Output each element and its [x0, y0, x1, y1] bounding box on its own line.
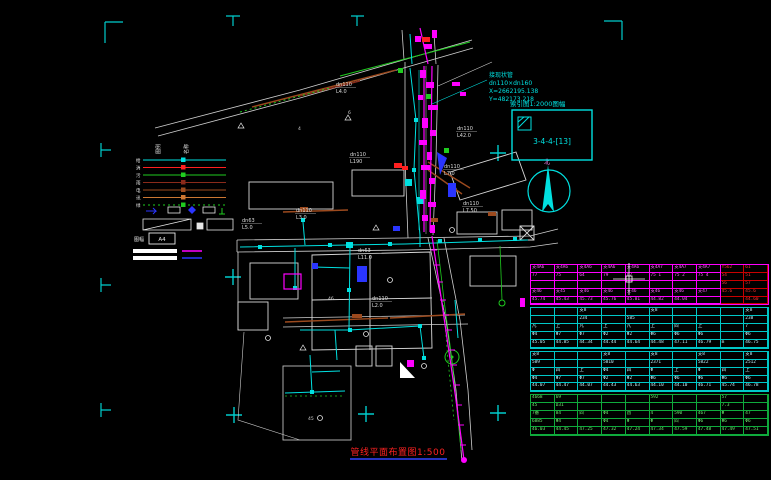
- green-line: [500, 246, 502, 300]
- table-cell: [555, 308, 579, 316]
- table-cell: 54: [721, 273, 745, 281]
- table-cell: 75 2: [673, 273, 697, 281]
- table-cell: Φ6: [697, 419, 721, 427]
- legend-symbol-row: [146, 206, 225, 214]
- table-cell: [578, 395, 602, 403]
- pipe-length-label: L42.0: [457, 133, 471, 139]
- table-cell: 支4A6: [578, 265, 602, 273]
- road-vertical-edge: [402, 30, 408, 238]
- table-cell: 84: [555, 411, 579, 419]
- table-cell: [626, 360, 650, 368]
- pipe-length-label: L11.0: [358, 255, 372, 261]
- legend-item-label: 污: [136, 172, 141, 179]
- table-cell: 支8: [602, 352, 626, 360]
- boundary-line: [238, 332, 300, 440]
- table-cell: 77: [531, 273, 555, 281]
- table-cell: [626, 281, 650, 289]
- north-arrow: 北: [528, 158, 570, 212]
- pipe-size-label: dn110: [336, 82, 352, 88]
- pipe-length-label: L4.0: [336, 89, 347, 95]
- legend-header-left: 图例: [155, 144, 162, 154]
- table-cell: Φ: [626, 419, 650, 427]
- pipe-length-label: L7.50: [463, 208, 477, 214]
- table-cell: 47.59: [673, 427, 697, 435]
- table-cell: 支4A7: [650, 265, 674, 273]
- map-number-label: 45: [308, 416, 314, 422]
- table-cell: 凡: [531, 324, 555, 332]
- hatch-box-icon: [143, 219, 191, 230]
- table-cell: Φ4: [531, 376, 555, 384]
- index-box: 索引图1:2000图幅 3-4-4-[13]: [510, 99, 592, 160]
- table-cell: 支46: [626, 289, 650, 297]
- table-cell: [721, 316, 745, 324]
- table-cell: 238: [744, 316, 768, 324]
- pipe-length-label: L2.0: [372, 303, 383, 309]
- table-cell: 上: [744, 368, 768, 376]
- table-cell: Φ6: [650, 332, 674, 340]
- table-cell: 45.76: [602, 297, 626, 305]
- table-cell: Φ7: [578, 332, 602, 340]
- table-cell: [578, 360, 602, 368]
- red-marker: [422, 37, 430, 42]
- frame-corner-top-left: [105, 22, 123, 43]
- magenta-line-vertical: [424, 66, 432, 232]
- table-cell: 47.49: [721, 427, 745, 435]
- utility-box: [488, 212, 496, 216]
- table-cell: 47: [744, 411, 768, 419]
- table-cell: [650, 316, 674, 324]
- table-cell: 45.43: [555, 297, 579, 305]
- table-cell: [673, 316, 697, 324]
- legend-line-symbol: [181, 158, 186, 163]
- table-cell: 支8: [697, 352, 721, 360]
- table-cell: 上: [602, 324, 626, 332]
- table-cell: 7番: [531, 411, 555, 419]
- legend-item-label: 电: [136, 187, 141, 194]
- table-cell: 支8: [578, 308, 602, 316]
- table-cell: Φ7: [578, 376, 602, 384]
- annotation-line-0: 接现状管: [489, 71, 513, 79]
- table-cell: 支46: [673, 289, 697, 297]
- table-cell: [697, 308, 721, 316]
- table-cell: Φ2: [602, 332, 626, 340]
- legend-header-right: 名称: [183, 144, 190, 154]
- table-cell: Φ2: [626, 332, 650, 340]
- elevation-table: 支4A6支4A6支4A6支4A6支4A6支4A7支4A7支4A7Y5626177…: [530, 264, 769, 436]
- green-symbol-icon: [219, 208, 225, 214]
- table-cell: Φ: [531, 368, 555, 376]
- table-cell: [602, 308, 626, 316]
- water-branch: [295, 222, 350, 330]
- table-cell: 585: [626, 316, 650, 324]
- table-cell: 44.10: [673, 383, 697, 391]
- table-cell: 上: [578, 368, 602, 376]
- map-number-label: 46: [328, 296, 334, 302]
- plain-box-icon: [207, 219, 233, 230]
- water-line: [410, 34, 412, 64]
- table-cell: Φ4: [602, 411, 626, 419]
- table-cell: 四: [578, 411, 602, 419]
- table-cell: 61: [744, 265, 768, 273]
- north-needle: [542, 165, 554, 212]
- grid-crosses: [225, 145, 506, 423]
- table-cell: 44.43: [602, 383, 626, 391]
- table-cell: [721, 352, 745, 360]
- table-cell: [697, 281, 721, 289]
- green-marker: [426, 94, 431, 99]
- table-cell: [721, 308, 745, 316]
- table-cell: 支8: [650, 352, 674, 360]
- table-cell: 44.63: [626, 383, 650, 391]
- table-cell: 支46: [531, 289, 555, 297]
- legend-line-symbol: [181, 173, 186, 178]
- blue-shape: [312, 263, 318, 269]
- table-cell: [602, 281, 626, 289]
- table-cell: [578, 403, 602, 411]
- box-symbol-icon: [168, 207, 180, 213]
- green-line: [437, 240, 461, 450]
- table-cell: 44.04: [673, 297, 697, 305]
- legend-line-symbol: [181, 188, 186, 193]
- north-label: 北: [544, 158, 550, 166]
- table-cell: Φ6: [721, 376, 745, 384]
- table-cell: 凡: [626, 324, 650, 332]
- table-cell: 支47: [697, 289, 721, 297]
- table-cell: 上: [697, 324, 721, 332]
- table-cell: 44.07: [578, 383, 602, 391]
- frame-tick-left-3: [101, 403, 111, 417]
- table-cell: [555, 316, 579, 324]
- table-cell: [673, 403, 697, 411]
- grid-cross: [358, 406, 374, 422]
- scale-label: A4: [158, 237, 166, 243]
- blue-shape: [448, 183, 456, 197]
- table-cell: 上: [673, 368, 697, 376]
- table-cell: 44.07: [531, 383, 555, 391]
- building-square-x: [520, 226, 534, 240]
- table-cell: 44.47: [555, 383, 579, 391]
- table-cell: 支8: [531, 352, 555, 360]
- magenta-rect-outline: [284, 274, 301, 289]
- table-cell: 支8: [650, 308, 674, 316]
- legend: 图例 名称 给消污雨电讯绿 图幅 A4: [133, 144, 233, 260]
- table-cell: 四: [626, 368, 650, 376]
- pipe-length-label: L190: [350, 159, 362, 165]
- index-hatched-cell: [518, 117, 531, 130]
- table-cell: 47.32: [602, 427, 626, 435]
- table-cell: 592: [650, 395, 674, 403]
- table-cell: 支4A6: [555, 265, 579, 273]
- table-cell: 56: [721, 281, 745, 289]
- pipe-size-label: dn110: [372, 296, 388, 302]
- table-cell: [721, 297, 745, 305]
- arrow-symbol-icon: [146, 208, 156, 214]
- legend-scale-box: 图幅 A4: [134, 233, 175, 244]
- table-cell: 46.71: [697, 383, 721, 391]
- table-cell: 57: [744, 281, 768, 289]
- road-south-edge: [428, 238, 462, 462]
- grid-cross: [225, 269, 241, 285]
- table-cell: [602, 395, 626, 403]
- water-branch: [300, 326, 424, 358]
- table-cell: Φ6: [697, 332, 721, 340]
- legend-line-symbol: [181, 180, 186, 185]
- table-cell: [578, 281, 602, 289]
- table-cell: Φ4: [555, 419, 579, 427]
- table-cell: 支8: [744, 352, 768, 360]
- tree-center: [451, 356, 454, 359]
- legend-item-label: 绿: [136, 202, 141, 209]
- table-cell: [673, 352, 697, 360]
- table-cell: 46.75: [744, 340, 768, 348]
- frame-tick-left-2: [101, 278, 111, 292]
- table-cell: 57: [721, 395, 745, 403]
- table-cell: [531, 316, 555, 324]
- table-cell: [602, 403, 626, 411]
- table-cell: [697, 395, 721, 403]
- table-cell: 上: [555, 324, 579, 332]
- frame-corner-top-right: [604, 21, 622, 40]
- table-cell: 47.11: [673, 340, 697, 348]
- table-cell: 47.24: [626, 427, 650, 435]
- table-cell: 69: [555, 395, 579, 403]
- table-section-0: 支4A6支4A6支4A6支4A6支4A6支4A7支4A7支4A7Y5626177…: [530, 264, 769, 305]
- table-cell: 45.81: [626, 297, 650, 305]
- table-cell: [650, 281, 674, 289]
- blue-shape: [393, 226, 400, 231]
- table-cell: 5822: [697, 360, 721, 368]
- table-cell: 凡: [578, 324, 602, 332]
- table-cell: 6885: [531, 419, 555, 427]
- table-cell: 67: [626, 273, 650, 281]
- table-cell: D31: [555, 403, 579, 411]
- table-cell: Φ6: [744, 419, 768, 427]
- table-cell: 支4A7: [697, 265, 721, 273]
- table-cell: [673, 395, 697, 403]
- utility-line: [283, 210, 348, 212]
- utility-line: [252, 70, 396, 107]
- green-marker: [444, 148, 449, 153]
- table-section-3: 4668695925745D317.37番84四Φ4酉4590467Φ47688…: [530, 394, 769, 435]
- map-number-label: 6: [348, 110, 351, 116]
- table-cell: [673, 360, 697, 368]
- table-cell: [555, 281, 579, 289]
- table-cell: Φ: [697, 368, 721, 376]
- cad-viewport[interactable]: 北 索引图1:2000图幅 3-4-4-[13] 接现状管 dn110×dn16…: [0, 0, 771, 480]
- building-outline: [352, 170, 404, 196]
- legend-hatch-row: [143, 219, 233, 230]
- table-cell: 47.25: [578, 427, 602, 435]
- table-cell: [626, 352, 650, 360]
- blue-shape: [357, 266, 367, 282]
- pipe-size-label: dn110: [350, 152, 366, 158]
- table-cell: 四: [673, 324, 697, 332]
- table-cell: 44.82: [650, 297, 674, 305]
- table-cell: [626, 403, 650, 411]
- water-pipes: [240, 34, 528, 394]
- table-cell: 79: [602, 273, 626, 281]
- table-cell: 45.74: [531, 297, 555, 305]
- table-cell: 上: [650, 324, 674, 332]
- table-cell: 46.03: [531, 427, 555, 435]
- table-cell: 75 4: [697, 273, 721, 281]
- table-cell: [744, 395, 768, 403]
- table-cell: 44.85: [555, 340, 579, 348]
- table-cell: Φ2: [602, 376, 626, 384]
- table-cell: Φ6: [744, 376, 768, 384]
- table-cell: [531, 308, 555, 316]
- pipe-size-label: dn110: [296, 208, 312, 214]
- table-cell: Φ6: [673, 376, 697, 384]
- table-cell: Φ6: [650, 376, 674, 384]
- pipe-size-label: dn110: [457, 126, 473, 132]
- pipe-length-label: L7.0: [444, 171, 455, 177]
- table-cell: 支4A6: [531, 265, 555, 273]
- table-cell: [721, 332, 745, 340]
- small-square-icon: [197, 223, 203, 229]
- table-cell: 51: [744, 273, 768, 281]
- table-cell: 4668: [531, 395, 555, 403]
- table-cell: 64: [578, 273, 602, 281]
- legend-line-symbol: [181, 203, 186, 208]
- table-cell: [650, 403, 674, 411]
- water-main: [240, 240, 528, 247]
- legend-item-label: 讯: [136, 195, 141, 202]
- table-cell: 44.34: [578, 340, 602, 348]
- map-number-label: 4: [298, 126, 301, 132]
- table-cell: Φ6: [673, 332, 697, 340]
- table-cell: 5810: [602, 360, 626, 368]
- table-section-1: 支8支8支8234585238凡上凡上凡上四上7Φ4Φ7Φ7Φ2Φ2Φ6Φ6Φ6…: [530, 307, 769, 348]
- table-cell: Φ4: [602, 368, 626, 376]
- table-cell: [697, 297, 721, 305]
- grid-cross: [490, 145, 506, 161]
- table-cell: Φ2: [626, 376, 650, 384]
- legend-item-label: 给: [136, 157, 141, 164]
- table-cell: 4: [650, 411, 674, 419]
- table-cell: Φ: [650, 368, 674, 376]
- table-cell: Φ4: [531, 332, 555, 340]
- box-symbol-icon: [203, 207, 215, 213]
- title-block: 管线平面布置图1:500: [350, 446, 447, 459]
- table-cell: 44.48: [650, 340, 674, 348]
- table-cell: 45: [531, 403, 555, 411]
- table-cell: 支8: [744, 308, 768, 316]
- table-cell: 2512: [744, 360, 768, 368]
- table-cell: 44.10: [650, 383, 674, 391]
- utility-box: [430, 218, 438, 222]
- scale-caption: 图幅: [134, 236, 144, 243]
- legend-bars: [133, 249, 202, 260]
- table-cell: 支4A6: [602, 265, 626, 273]
- magenta-end-node: [461, 457, 467, 463]
- frame-tick-top-2: [351, 16, 364, 26]
- blue-features: [312, 152, 456, 282]
- table-cell: [555, 360, 579, 368]
- table-cell: 47.48: [697, 427, 721, 435]
- pipe-length-label: L5.0: [242, 225, 253, 231]
- pipe-size-label: dn110: [444, 164, 460, 170]
- table-cell: 44.64: [626, 340, 650, 348]
- table-cell: 75 1: [650, 273, 674, 281]
- table-cell: [626, 308, 650, 316]
- table-cell: Y562: [721, 265, 745, 273]
- index-box-code: 3-4-4-[13]: [533, 137, 571, 146]
- building-outline: [238, 302, 268, 330]
- table-cell: 支4A6: [626, 265, 650, 273]
- table-cell: [744, 403, 768, 411]
- table-cell: 45.74: [721, 383, 745, 391]
- table-cell: Φ4: [602, 419, 626, 427]
- table-cell: [555, 352, 579, 360]
- legend-line-symbol: [181, 165, 186, 170]
- table-cell: Φ7: [555, 376, 579, 384]
- table-cell: 46.78: [744, 383, 768, 391]
- drawing-title: 管线平面布置图1:500: [351, 446, 446, 458]
- table-cell: 45.73: [578, 297, 602, 305]
- table-cell: 47.34: [650, 427, 674, 435]
- table-cell: [602, 316, 626, 324]
- table-cell: 47.51: [744, 427, 768, 435]
- table-cell: [673, 308, 697, 316]
- table-cell: 支45: [555, 289, 579, 297]
- table-cell: 45.6: [744, 289, 768, 297]
- water-main: [410, 68, 420, 247]
- road-branch: [438, 62, 492, 86]
- table-cell: 467: [697, 411, 721, 419]
- table-cell: 75: [555, 273, 579, 281]
- table-cell: Φ7: [555, 332, 579, 340]
- annotation-line-3: Y=482173.218: [488, 96, 534, 103]
- pipe-length-label: L3.0: [296, 215, 307, 221]
- building-outline: [249, 182, 333, 209]
- frame-tick-left-1: [101, 143, 111, 157]
- table-cell: m: [721, 340, 745, 348]
- table-cell: [721, 324, 745, 332]
- red-marker: [394, 163, 402, 168]
- table-cell: [673, 281, 697, 289]
- table-cell: Φ: [650, 419, 674, 427]
- table-cell: 44.44: [602, 340, 626, 348]
- table-cell: 支46: [650, 289, 674, 297]
- pipe-size-label: dn63: [358, 248, 371, 254]
- table-cell: [578, 419, 602, 427]
- table-cell: 支46: [578, 289, 602, 297]
- table-cell: 四: [555, 368, 579, 376]
- table-cell: 44.60: [744, 297, 768, 305]
- table-cell: [578, 352, 602, 360]
- table-cell: [697, 316, 721, 324]
- building-outline: [502, 210, 532, 230]
- building-outline: [283, 366, 351, 440]
- table-cell: 45.05: [531, 340, 555, 348]
- table-cell: 234: [578, 316, 602, 324]
- table-cell: Φ6: [721, 419, 745, 427]
- table-cell: 四: [673, 419, 697, 427]
- table-cell: 44.45: [555, 427, 579, 435]
- table-cell: 46.79: [697, 340, 721, 348]
- solid-bar: [133, 256, 177, 260]
- table-cell: 支46: [602, 289, 626, 297]
- utility-box: [352, 314, 362, 318]
- table-cell: [721, 360, 745, 368]
- tree-symbol: [499, 300, 505, 306]
- water-branch: [285, 330, 345, 393]
- solid-bar: [133, 249, 177, 253]
- table-cell: [697, 403, 721, 411]
- table-cell: [531, 281, 555, 289]
- table-cell: 7: [744, 324, 768, 332]
